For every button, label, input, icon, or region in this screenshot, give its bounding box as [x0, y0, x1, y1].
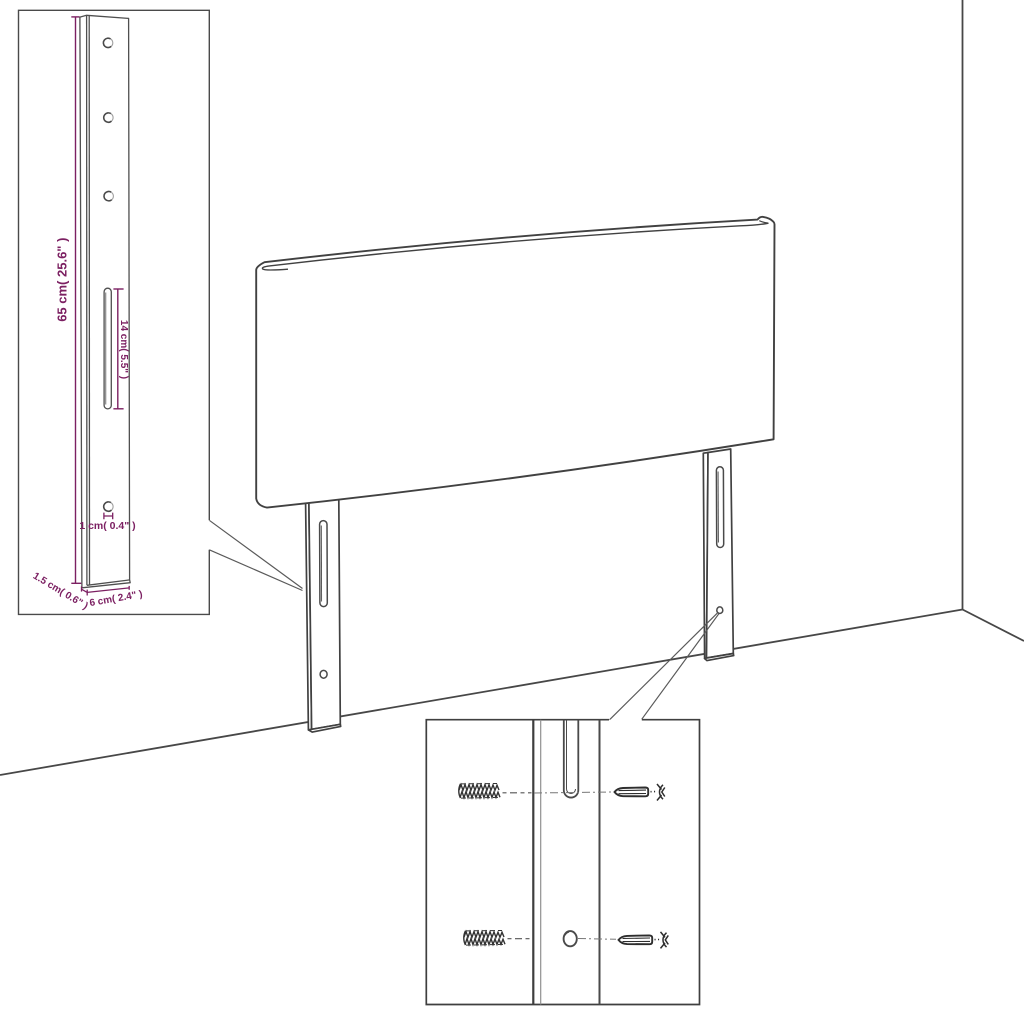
svg-text:1 cm( 0.4" ): 1 cm( 0.4" ) [79, 520, 135, 532]
svg-text:65 cm( 25.6" ): 65 cm( 25.6" ) [55, 238, 70, 322]
svg-text:14 cm( 5.5" ): 14 cm( 5.5" ) [118, 320, 129, 379]
